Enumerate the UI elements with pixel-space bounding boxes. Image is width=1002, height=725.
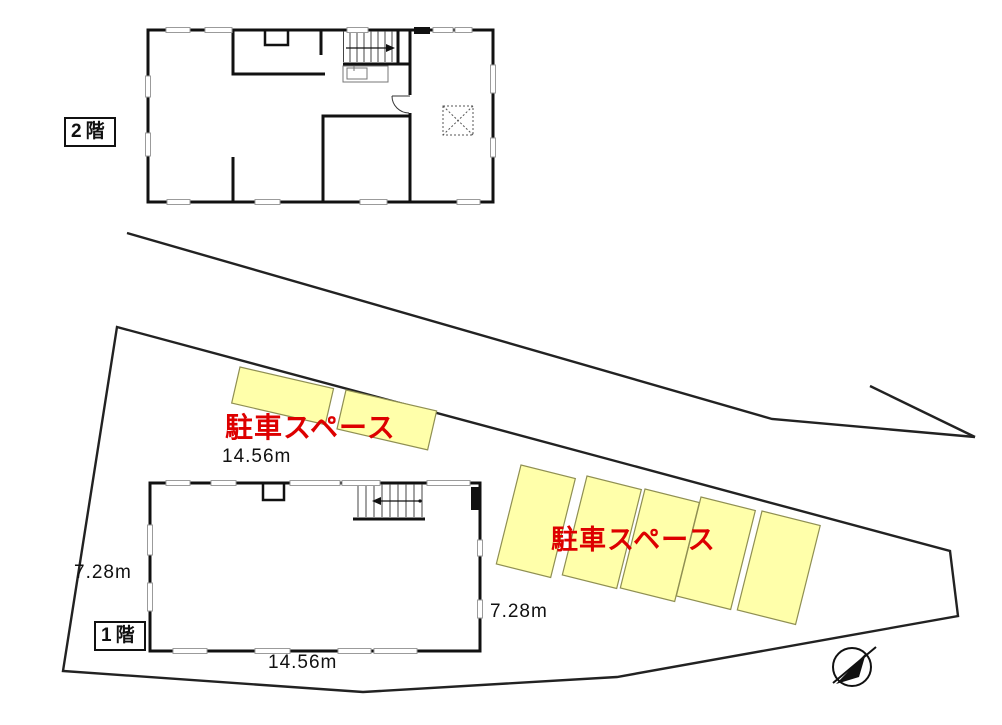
pillar-block [471,487,481,510]
floor2-plan [146,27,496,205]
dimension-left-height: 7.28m [74,562,132,584]
north-arrow-icon [833,647,876,686]
arrow-tail-dot [418,499,421,502]
floor1-plan [148,481,483,654]
washstand [343,66,388,82]
parking-space-label-left: 駐車スペース [225,406,396,446]
parking-space-label-right: 駐車スペース [551,518,716,557]
floor-1-label: 1階 [94,621,146,651]
pillar-block [414,27,430,34]
floor2-outline [148,30,493,202]
dimension-right-height: 7.28m [490,601,548,623]
dimension-top-width: 14.56m [222,446,291,468]
plan-page: 2階 1階 駐車スペース 駐車スペース 14.56m 7.28m 14.56m … [0,0,1002,725]
floor1-outline [150,483,480,651]
floor-2-label: 2階 [64,117,116,147]
dimension-bottom-width: 14.56m [268,652,337,674]
